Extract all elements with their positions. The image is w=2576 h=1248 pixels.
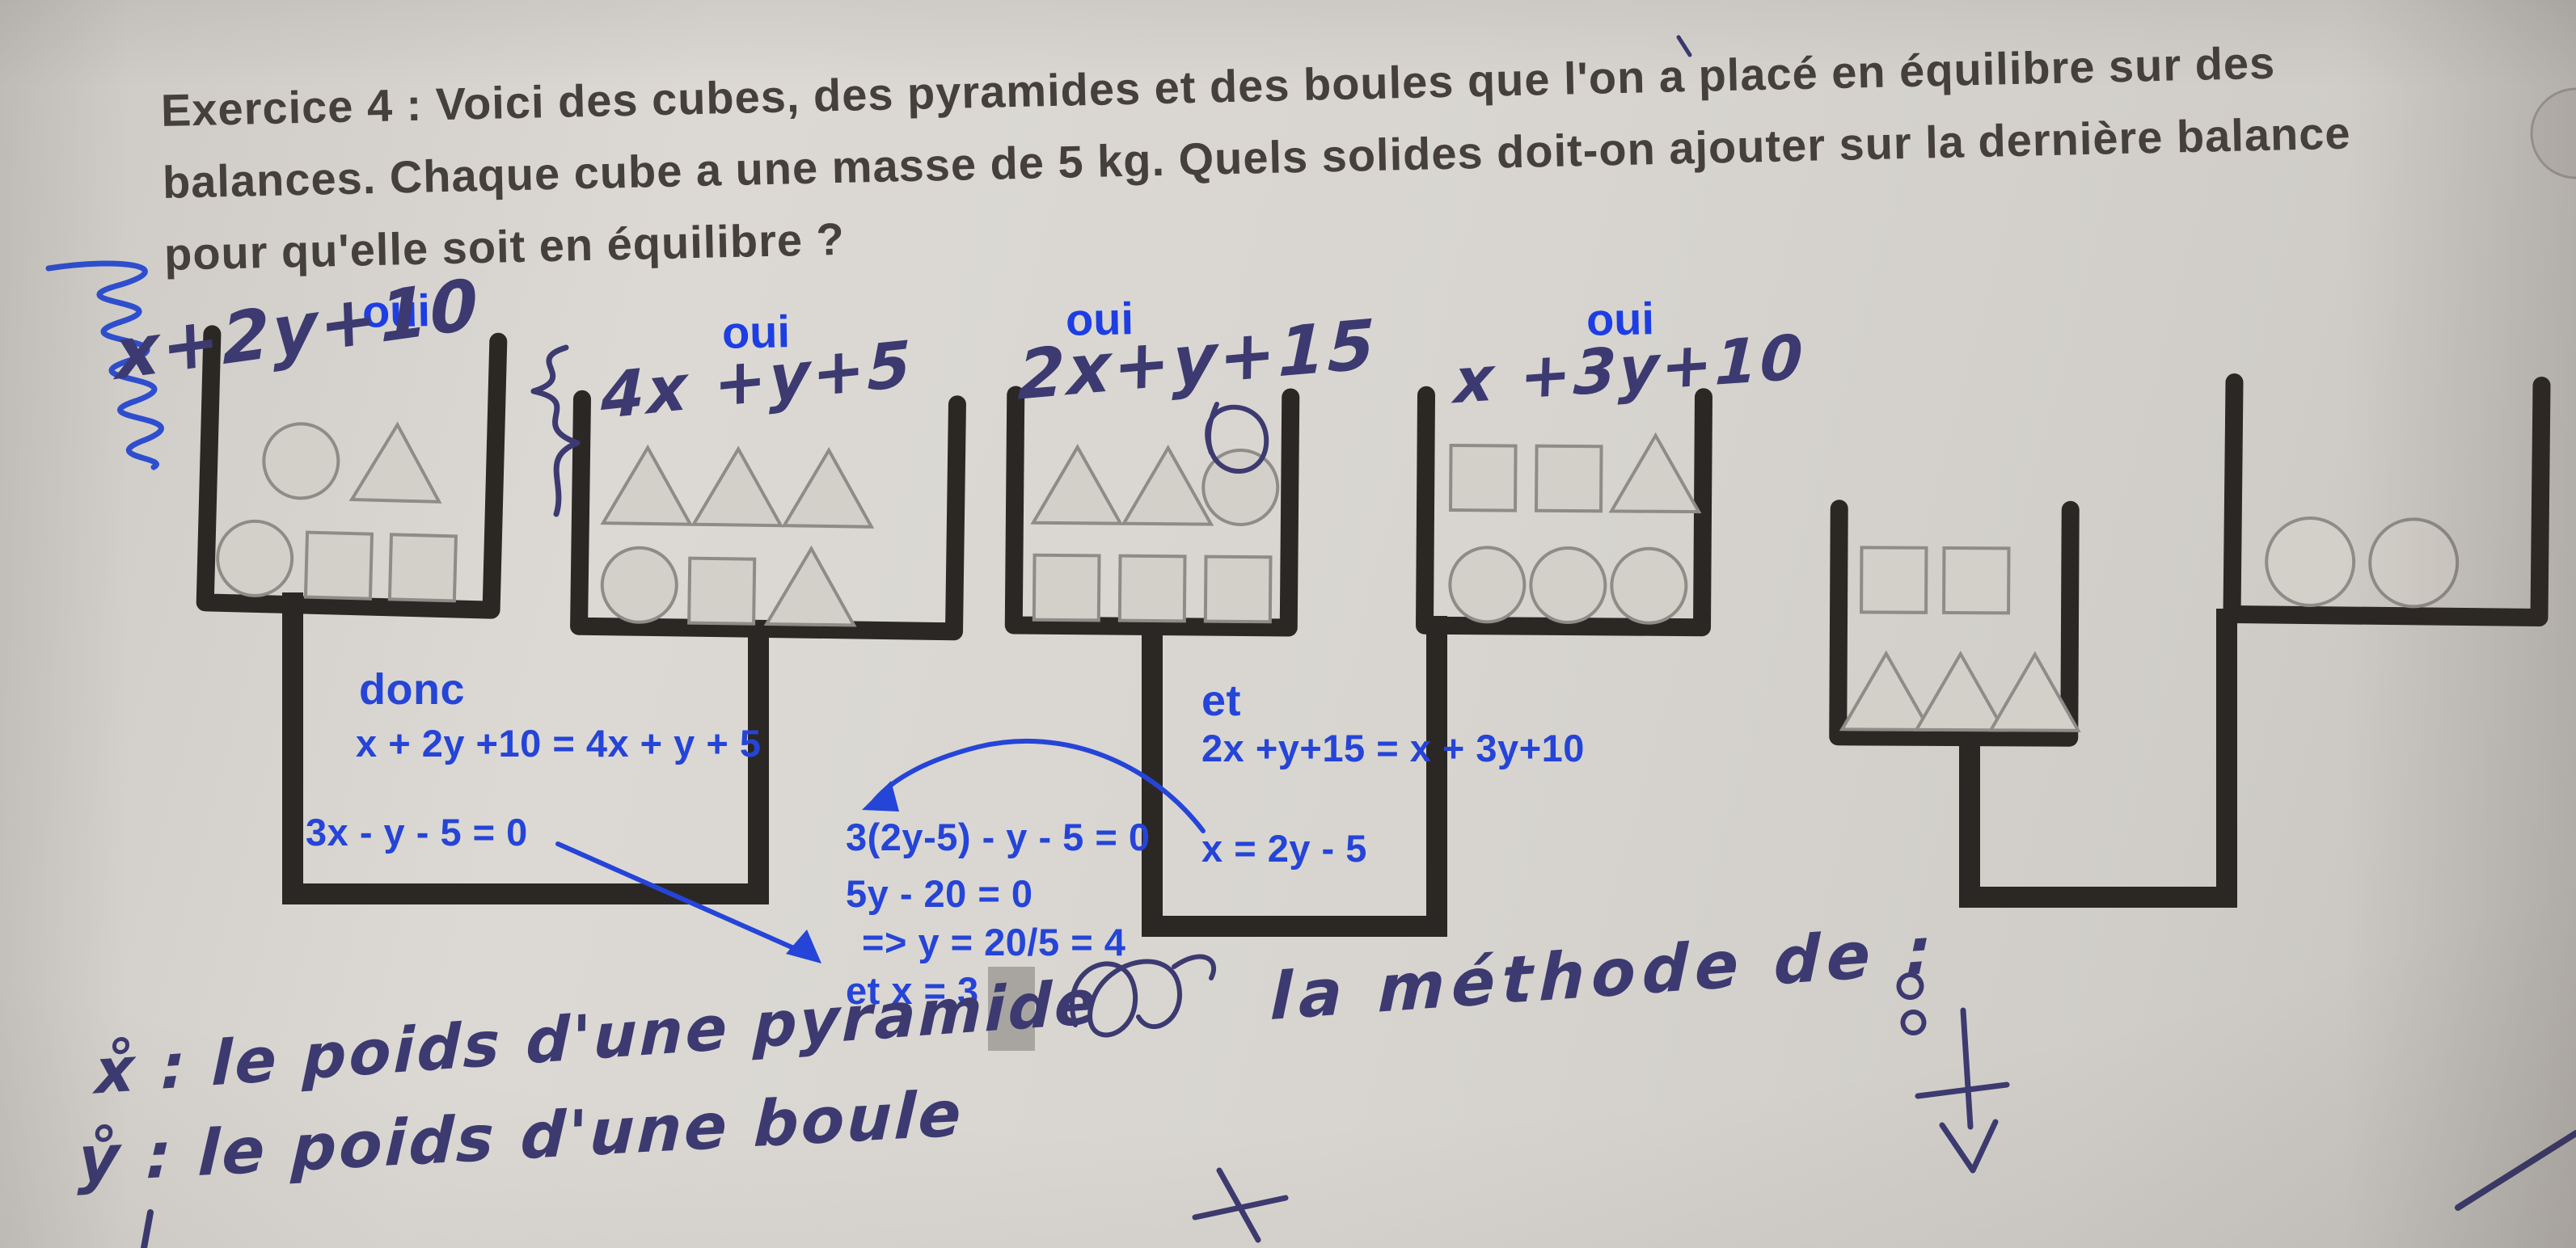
solution-y-value: => y = 20/5 = 4: [862, 920, 1125, 964]
shape-cube: [1120, 556, 1185, 622]
balance-beam-3: [1970, 619, 2227, 897]
shape-ball: [1450, 547, 1525, 622]
balance-pan-6: [2232, 382, 2542, 618]
balance-beam-2: [1152, 626, 1437, 926]
shape-pyramid: [352, 424, 441, 502]
shape-cube: [1861, 547, 1926, 612]
shape-ball: [602, 547, 677, 622]
shape-cube: [1206, 557, 1271, 622]
balance-pan-5: [1838, 508, 2079, 738]
worksheet-photo: Exercice 4 : Voici des cubes, des pyrami…: [0, 0, 2576, 1248]
shape-ball: [2266, 517, 2354, 605]
shape-pyramid: [1124, 448, 1212, 525]
pen-plus-mark-2: [1195, 1198, 1286, 1217]
balance-pan-2: [579, 399, 957, 631]
shape-ball: [2370, 519, 2458, 607]
shape-pyramid: [784, 449, 872, 526]
solution-substitution: 3(2y-5) - y - 5 = 0: [846, 815, 1151, 859]
pen-down-arrow-head: [1942, 1122, 1995, 1170]
shape-cube: [390, 534, 456, 601]
shape-pyramid: [1033, 447, 1121, 524]
paper-punch-notch: [2532, 89, 2576, 178]
pen-scribble-mid: [534, 348, 577, 514]
solution-simplified: 5y - 20 = 0: [846, 871, 1033, 916]
pen-down-arrow-shaft: [1963, 1010, 1970, 1127]
pen-doodle-tail: [1174, 957, 1214, 978]
shape-pyramid: [1842, 653, 1929, 730]
solution-equation-1: x + 2y +10 = 4x + y + 5: [356, 721, 762, 765]
shape-pyramid: [1611, 435, 1700, 512]
shape-ball: [1611, 548, 1687, 623]
shape-pyramid: [1916, 654, 2004, 731]
shape-cube: [1944, 548, 2008, 613]
shape-cube: [1034, 555, 1100, 621]
shape-pyramid: [603, 447, 691, 524]
shape-ball: [1531, 548, 1606, 623]
solution-intro-et: et: [1201, 676, 1241, 726]
pen-slash-bottom-right: [2458, 1133, 2576, 1208]
shape-cube: [1536, 446, 1602, 512]
shape-cube: [306, 533, 372, 599]
shape-pyramid: [694, 449, 782, 525]
shape-ball: [263, 423, 339, 499]
shape-cube: [1451, 445, 1516, 511]
solution-equation-2: 3x - y - 5 = 0: [306, 810, 528, 854]
balance-pan-3: [1014, 395, 1290, 628]
shape-cube: [689, 559, 754, 624]
shape-ball: [217, 521, 293, 597]
solution-x-isolated: x = 2y - 5: [1201, 826, 1367, 871]
solution-intro-donc: donc: [359, 664, 465, 715]
shape-pyramid: [766, 548, 855, 625]
pen-tick-bottom-left: [144, 1212, 150, 1248]
solution-equation-3: 2x +y+15 = x + 3y+10: [1201, 726, 1585, 770]
balance-pan-4: [1425, 395, 1704, 627]
pen-down-arrow-bar: [1918, 1085, 2007, 1096]
